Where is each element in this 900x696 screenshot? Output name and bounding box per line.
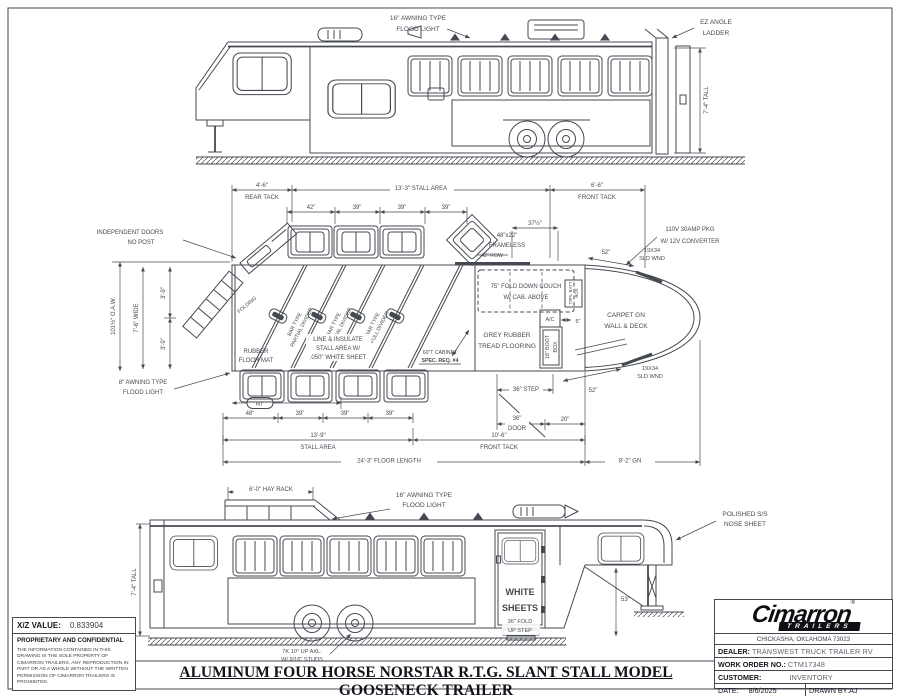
customer-label: CUSTOMER:: [718, 673, 761, 682]
dim-3-9-a: 3'-9": [161, 287, 167, 299]
plan-bottom-dims: 60" 48" 39" 39" 39" 13'-9" STALL AREA 10…: [223, 340, 700, 466]
top-view: 16" AWNING TYPE FLOOD LIGHT EZ ANGLE LAD…: [196, 15, 745, 164]
independent-doors-label-1: INDEPENDENT DOORS: [97, 230, 164, 236]
axle-label-2: W/ 9/16" STUDS: [281, 657, 323, 663]
couch-label-1: 75" FOLD DOWN COUCH: [491, 284, 562, 290]
white-sheets-label-1: WHITE: [506, 587, 535, 597]
spec-req-label: SPEC. REQ. #4: [422, 358, 459, 364]
couch-label-2: W/ CAB. ABOVE: [503, 295, 548, 301]
awning8-label-2: FLOOD LIGHT: [123, 390, 163, 396]
sld-wnd-top-1: 19X34: [644, 248, 660, 254]
brand-sub: TRAILERS: [778, 622, 860, 631]
fold-step-label-1: 36" FOLD: [508, 619, 533, 625]
dealer-value: TRANSWEST TRUCK TRAILER RV: [752, 647, 873, 656]
sheet-border: [8, 8, 892, 689]
dim-front-bot-2: FRONT TACK: [480, 445, 518, 451]
power-label-2: W/ 12V CONVERTER: [661, 239, 721, 245]
dim-stall-bot-1: 13'-9": [310, 433, 325, 439]
hay-rack: [225, 500, 340, 520]
nose-sheet-label-2: NOSE SHEET: [724, 521, 766, 528]
confidential-heading: PROPRIETARY AND CONFIDENTIAL: [13, 634, 135, 647]
boot-box-label-2: BOX: [553, 341, 559, 352]
row42-label: 42" ROW: [481, 253, 503, 259]
work-order-value: CTM17348: [788, 660, 825, 669]
sld-wnd-bot-1: 19X34: [642, 366, 658, 372]
dim-stall-bot-2: STALL AREA: [300, 445, 335, 451]
insulate-note-3: .050" WHITE SHEET: [310, 355, 367, 361]
axle-label-1: 7K 10° UP AXL.: [282, 649, 322, 655]
hay-rack-dim: 6'-0" HAY RACK: [249, 487, 293, 493]
dim-39: 39": [341, 411, 350, 417]
drawn-by-value: AJ: [849, 686, 857, 695]
drawn-by-label: DRAWN BY:: [809, 686, 849, 695]
folding-ramp: [183, 271, 243, 338]
bottom-flood-label-1: 16" AWNING TYPE: [396, 492, 453, 499]
date-label: DATE:: [718, 686, 739, 695]
flood-light-markers: [450, 34, 610, 41]
dealer-label: DEALER:: [718, 647, 750, 656]
awning8-label-1: 8" AWNING TYPE: [119, 380, 167, 386]
drawing-canvas: 16" AWNING TYPE FLOOD LIGHT EZ ANGLE LAD…: [0, 0, 900, 696]
dim-37half: 37½": [528, 220, 542, 227]
dim-39: 39": [398, 205, 407, 211]
carpet-label-2: WALL & DECK: [604, 323, 648, 330]
sld-wnd-bot-2: SLD WND: [637, 374, 663, 380]
dim-39: 39": [386, 411, 395, 417]
brand-logo: Cimarron® TRAILERS: [715, 600, 892, 633]
dim-53: 53": [621, 597, 630, 603]
legal-text: THE INFORMATION CONTAINED IN THIS DRAWIN…: [13, 647, 135, 690]
white-sheets-label-2: SHEETS: [502, 603, 538, 613]
grey-rubber-label-1: GREY RUBBER: [483, 332, 531, 339]
dim-5: 5": [575, 319, 580, 325]
plan-view: FOLDING 4'-6" R: [97, 183, 720, 466]
dim-52-bottom: 52": [589, 388, 598, 394]
batt-label-1: TRPL BATT: [568, 281, 573, 304]
dim-floor-length: 24'-3" FLOOR LENGTH: [357, 459, 421, 465]
independent-doors-label-2: NO POST: [127, 240, 154, 246]
dim-rear-tack-1: 4'-6": [256, 183, 268, 189]
dim-52-top: 52": [602, 250, 611, 256]
frameless-label-2: FRAMELESS: [489, 243, 525, 249]
brand-address: CHICKASHA, OKLAHOMA 73023: [715, 633, 892, 645]
flood-light-markers: [365, 513, 483, 520]
top-flood-light-label-2: FLOOD LIGHT: [396, 26, 439, 33]
dim-wide: 7'-6" WIDE: [134, 303, 140, 332]
ez-ladder-label-1: EZ ANGLE: [700, 19, 732, 26]
dim-front-tack-1: 6'-6": [591, 183, 603, 189]
xz-value: 0.833904: [70, 621, 103, 630]
dim-36-door-1: 36": [513, 416, 522, 422]
bottom-flood-label-2: FLOOD LIGHT: [402, 502, 445, 509]
top-flood-light-label-1: 16" AWNING TYPE: [390, 15, 447, 22]
dim-front-bot-1: 10'-6": [491, 433, 506, 439]
plan-step-door-dims: 36" STEP 36" DOOR 20": [497, 374, 585, 437]
dim-gn-length: 8'-2" GN: [619, 459, 642, 465]
boot-box-label-1: 18" BOOT: [545, 334, 551, 359]
info-block: X/Z VALUE: 0.833904 PROPRIETARY AND CONF…: [12, 617, 136, 691]
title-block: Cimarron® TRAILERS CHICKASHA, OKLAHOMA 7…: [714, 599, 893, 689]
dim-39: 39": [353, 205, 362, 211]
dim-3-9-b: 3'-9": [161, 338, 167, 350]
dim-42: 42": [307, 205, 316, 211]
dim-39: 39": [296, 411, 305, 417]
nose-sheet-label-1: POLISHED S/S: [722, 511, 768, 518]
power-label-1: 110V 30AMP PKG: [665, 227, 714, 233]
frameless-label-1: 48"x22": [497, 233, 518, 239]
dim-20: 20": [561, 417, 570, 423]
customer-value: INVENTORY: [789, 673, 832, 682]
insulate-note-1: LINE & INSULATE: [313, 337, 363, 343]
grey-rubber-label-2: TREAD FLOORING: [478, 343, 536, 350]
fold-step-label-2: UP STEP: [508, 628, 532, 634]
dim-front-tack-2: FRONT TACK: [578, 195, 616, 201]
bottom-height-dim: 7'-4" TALL: [132, 568, 138, 596]
xz-value-label: X/Z VALUE:: [17, 621, 61, 630]
dim-36-step: 36" STEP: [513, 387, 539, 393]
dim-60: 60": [256, 402, 264, 408]
top-height-dim: 7'-4" TALL: [704, 86, 710, 114]
work-order-label: WORK ORDER NO.:: [718, 660, 786, 669]
date-value: 8/6/2025: [749, 686, 777, 695]
dim-rear-tack-2: REAR TACK: [245, 195, 279, 201]
dim-stall-area-top: 13'-3" STALL AREA: [395, 186, 447, 192]
batt-label-2: BOX: [574, 288, 579, 297]
dim-48: 48": [246, 411, 255, 417]
dim-oaw: 101½" O.A.W.: [110, 297, 117, 335]
rubber-mat-label-2: FLOOR MAT: [239, 358, 274, 364]
dim-39: 39": [442, 205, 451, 211]
insulate-note-2: STALL AREA W/: [316, 346, 360, 352]
carpet-label-1: CARPET GN: [607, 312, 645, 319]
bottom-view: WHITE SHEETS 36" FOLD UP STEP 6'-0" HAY …: [132, 484, 768, 663]
rubber-mat-label-1: RUBBER: [243, 349, 269, 355]
drawing-sheet: 16" AWNING TYPE FLOOD LIGHT EZ ANGLE LAD…: [0, 0, 900, 696]
dim-36-door-2: DOOR: [508, 426, 527, 432]
sld-wnd-top-2: SLD WND: [639, 256, 665, 262]
ez-ladder-label-2: LADDER: [703, 30, 730, 37]
ac-label: A/C: [546, 317, 555, 323]
folding-label: FOLDING: [237, 296, 259, 315]
drawing-title: ALUMINUM FOUR HORSE NORSTAR R.T.G. SLANT…: [140, 664, 712, 696]
white-sheets-door: [495, 530, 545, 628]
